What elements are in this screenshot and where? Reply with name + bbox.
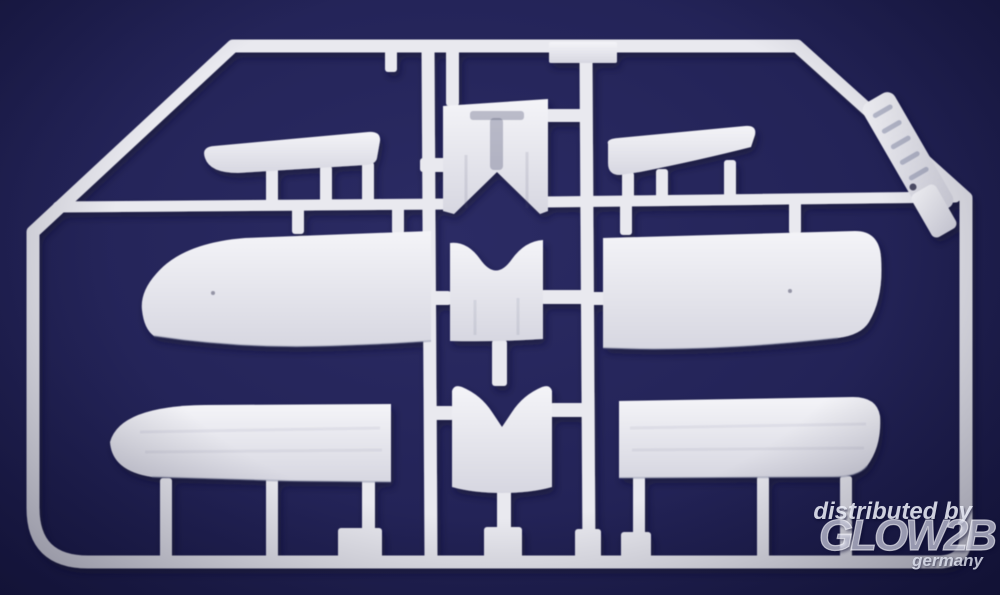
watermark-country: germany bbox=[912, 551, 983, 571]
mid-cowling-section bbox=[450, 240, 543, 341]
mid-rail bbox=[58, 197, 955, 207]
left-lower-wing-panel bbox=[110, 404, 391, 482]
right-upper-wing-panel bbox=[603, 231, 882, 349]
upper-fuselage-deck bbox=[443, 99, 548, 214]
left-tailplane bbox=[204, 132, 380, 173]
front-cowling-section bbox=[452, 386, 552, 493]
right-lower-wing-panel bbox=[619, 397, 880, 478]
tag-gate-mark bbox=[910, 184, 917, 191]
photo-scene: distributed by GLOW2B germany bbox=[0, 0, 1000, 595]
left-upper-wing-panel bbox=[142, 231, 431, 347]
small-rectangular-part bbox=[549, 42, 617, 63]
right-vertical-rail bbox=[586, 60, 589, 557]
